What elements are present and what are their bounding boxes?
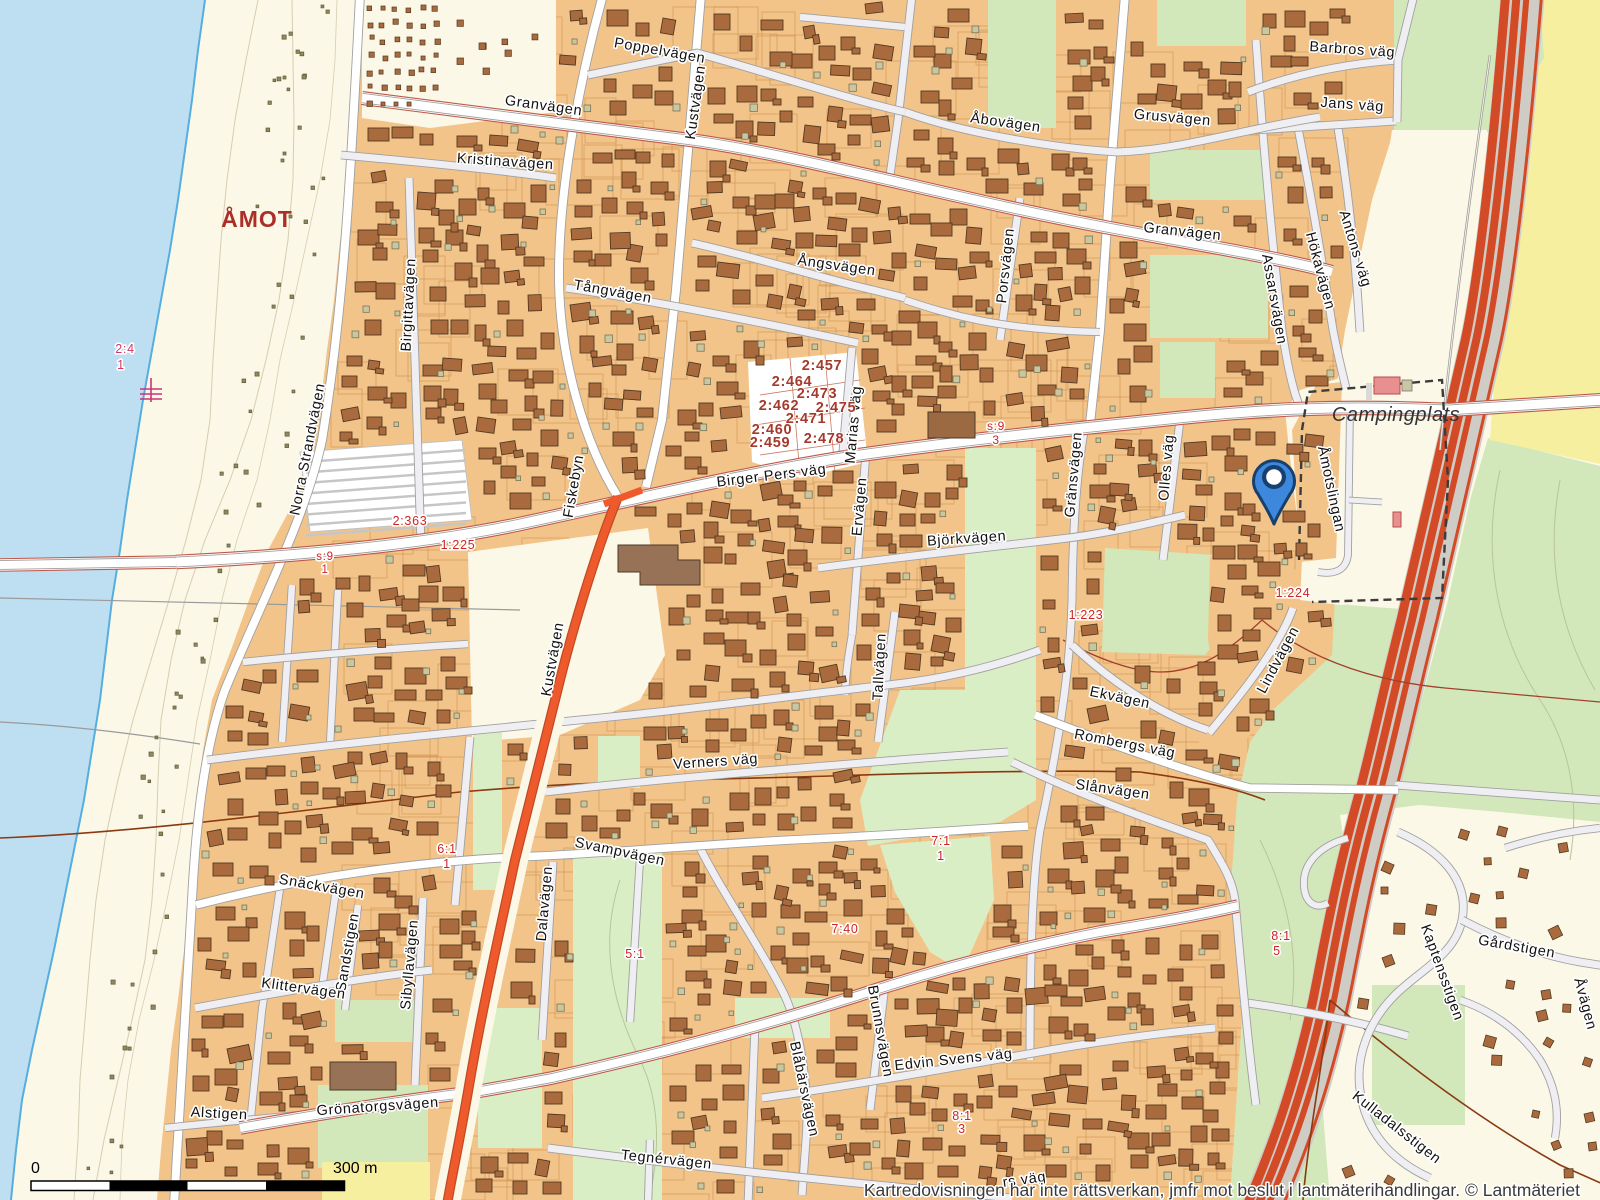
svg-text:5:1: 5:1	[625, 947, 644, 961]
svg-text:6:1: 6:1	[437, 842, 456, 856]
svg-text:1:224: 1:224	[1276, 586, 1311, 600]
svg-text:s:9: s:9	[316, 551, 333, 563]
svg-text:2:478: 2:478	[804, 431, 845, 447]
svg-text:ÅMOT: ÅMOT	[221, 205, 293, 232]
svg-text:2:4: 2:4	[115, 342, 134, 356]
svg-text:3: 3	[992, 433, 999, 447]
svg-text:1: 1	[443, 857, 451, 871]
svg-text:1:225: 1:225	[441, 538, 476, 552]
svg-text:1: 1	[937, 849, 945, 863]
svg-text:0: 0	[31, 1160, 40, 1177]
svg-text:Kartredovisningen har inte rät: Kartredovisningen har inte rättsverkan, …	[864, 1180, 1580, 1200]
svg-text:1:223: 1:223	[1069, 608, 1104, 622]
svg-text:2:459: 2:459	[750, 435, 791, 451]
svg-text:1: 1	[321, 564, 328, 576]
svg-text:s:9: s:9	[987, 419, 1005, 433]
svg-text:7:40: 7:40	[831, 922, 858, 936]
svg-text:1: 1	[117, 358, 125, 372]
svg-text:8:1: 8:1	[952, 1109, 971, 1123]
svg-text:2:363: 2:363	[393, 514, 428, 528]
svg-text:300 m: 300 m	[333, 1160, 377, 1177]
svg-text:7:1: 7:1	[931, 834, 950, 848]
svg-text:3: 3	[958, 1122, 966, 1136]
svg-text:5: 5	[1273, 944, 1281, 958]
svg-text:Alstigen: Alstigen	[190, 1105, 248, 1124]
svg-text:Campingplats: Campingplats	[1332, 404, 1460, 426]
svg-text:8:1: 8:1	[1271, 929, 1290, 943]
svg-text:2:457: 2:457	[802, 358, 843, 374]
